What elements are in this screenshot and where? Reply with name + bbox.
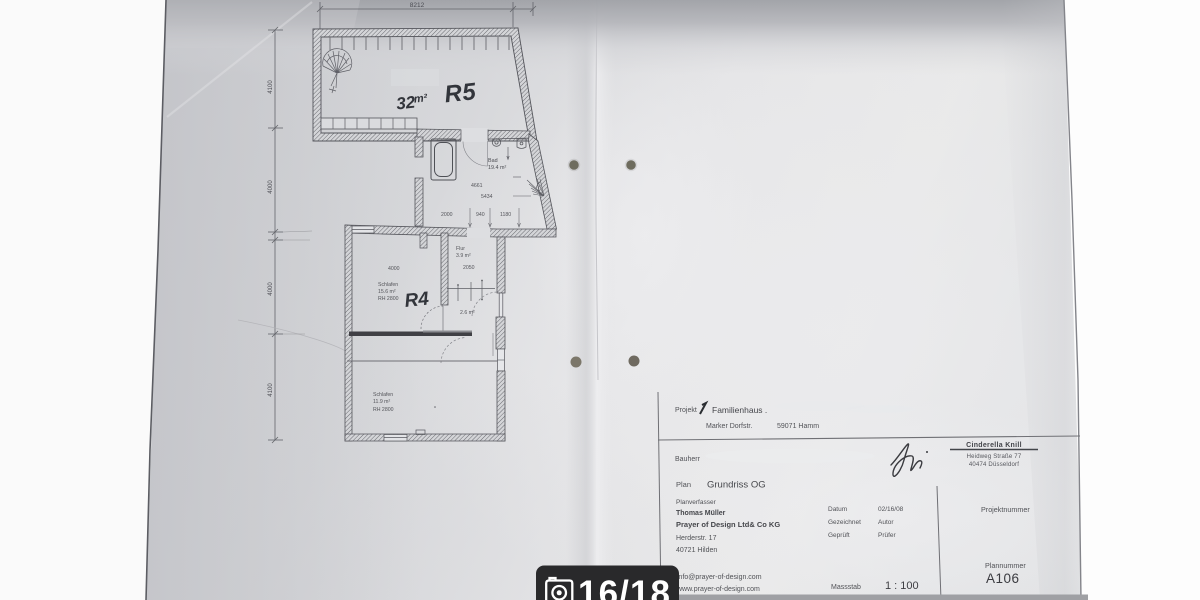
svg-text:Planverfasser: Planverfasser	[676, 499, 717, 506]
svg-text:A106: A106	[986, 571, 1020, 586]
svg-text:Projektnummer: Projektnummer	[981, 505, 1030, 514]
svg-text:4661: 4661	[471, 183, 483, 189]
svg-text:19.4 m²: 19.4 m²	[488, 165, 506, 171]
svg-text:R5: R5	[443, 78, 477, 108]
svg-text:4100: 4100	[268, 80, 274, 94]
svg-text:Plan: Plan	[676, 480, 691, 489]
svg-text:16/18: 16/18	[578, 574, 671, 600]
svg-text:940: 940	[476, 212, 485, 218]
svg-text:15.6 m²: 15.6 m²	[378, 289, 396, 295]
svg-text:40721 Hilden: 40721 Hilden	[676, 547, 717, 554]
svg-text:4000: 4000	[388, 266, 400, 272]
svg-text:5434: 5434	[481, 194, 493, 200]
svg-text:Herderstr. 17: Herderstr. 17	[676, 535, 717, 542]
svg-text:Autor: Autor	[878, 519, 894, 526]
svg-text:8212: 8212	[410, 2, 425, 9]
svg-text:Heidweg Straße 77: Heidweg Straße 77	[967, 454, 1022, 460]
svg-text:m²: m²	[413, 92, 428, 105]
svg-text:R4: R4	[404, 288, 431, 311]
svg-text:Bauherr: Bauherr	[675, 456, 701, 463]
svg-text:4000: 4000	[268, 180, 274, 194]
svg-text:Schlafen: Schlafen	[378, 282, 398, 288]
svg-text:Familienhaus .: Familienhaus .	[712, 405, 767, 415]
svg-text:4100: 4100	[268, 383, 274, 397]
svg-text:1 : 100: 1 : 100	[885, 580, 919, 592]
svg-text:2050: 2050	[463, 265, 475, 271]
svg-text:Prayer of Design Ltd& Co KG: Prayer of Design Ltd& Co KG	[676, 520, 780, 529]
svg-text:info@prayer-of-design.com: info@prayer-of-design.com	[677, 574, 762, 581]
svg-text:Grundriss OG: Grundriss OG	[707, 480, 766, 491]
svg-text:Schlafen: Schlafen	[373, 392, 393, 398]
svg-text:3.9 m²: 3.9 m²	[456, 253, 471, 259]
svg-text:2.6 m²: 2.6 m²	[460, 310, 475, 316]
svg-text:Geprüft: Geprüft	[828, 532, 850, 539]
svg-text:Projekt: Projekt	[675, 407, 697, 414]
svg-text:2000: 2000	[441, 212, 453, 218]
svg-text:4000: 4000	[268, 282, 274, 296]
svg-text:Flur: Flur	[456, 246, 465, 252]
svg-text:Massstab: Massstab	[831, 584, 861, 591]
svg-text:Bad: Bad	[488, 158, 498, 164]
svg-text:59071 Hamm: 59071 Hamm	[777, 423, 819, 430]
svg-text:11.9 m²: 11.9 m²	[373, 399, 390, 405]
svg-text:Marker Dorfstr.: Marker Dorfstr.	[706, 423, 752, 430]
svg-text:02/16/08: 02/16/08	[878, 506, 904, 513]
svg-text:Prüfer: Prüfer	[878, 532, 897, 539]
svg-text:Cinderella Knill: Cinderella Knill	[966, 442, 1022, 449]
svg-text:Datum: Datum	[828, 506, 847, 513]
svg-text:1180: 1180	[500, 212, 511, 218]
svg-text:Gezeichnet: Gezeichnet	[828, 519, 861, 526]
svg-text:www.prayer-of-design.com: www.prayer-of-design.com	[676, 586, 760, 593]
svg-text:Plannummer: Plannummer	[985, 561, 1026, 570]
svg-text:40474 Düsseldorf: 40474 Düsseldorf	[969, 462, 1019, 468]
svg-text:RH 2800: RH 2800	[373, 407, 394, 413]
svg-text:RH 2800: RH 2800	[378, 296, 399, 302]
svg-text:Thomas Müller: Thomas Müller	[676, 510, 726, 517]
